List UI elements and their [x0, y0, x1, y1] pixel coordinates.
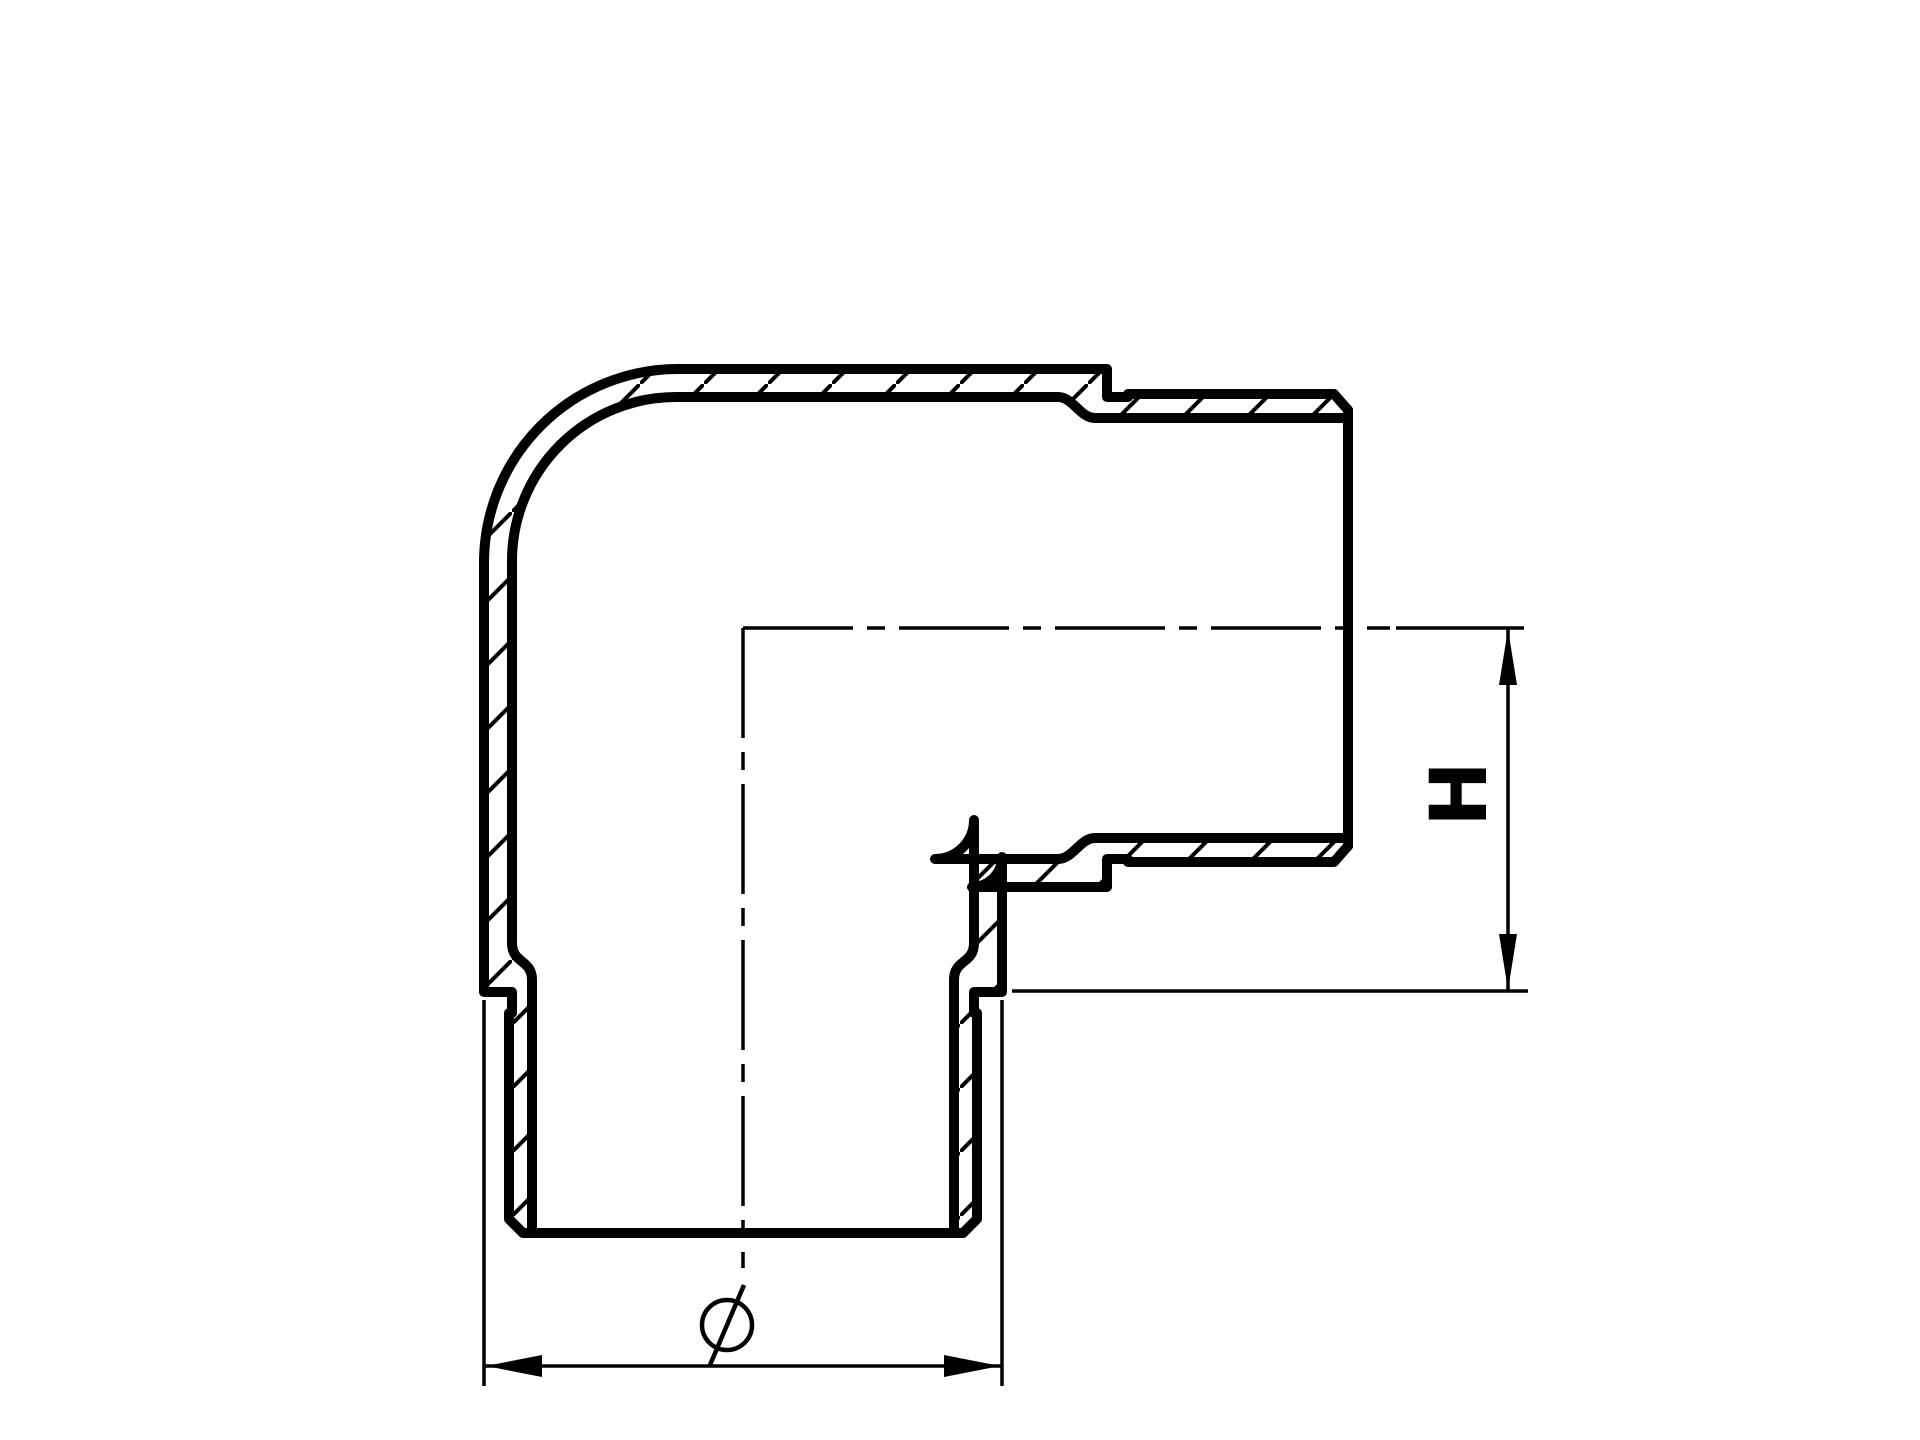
- inner-wall-section: [935, 820, 1348, 1233]
- technical-drawing-canvas: H: [0, 0, 1920, 1440]
- centerlines: [743, 628, 1390, 1268]
- drawing-page: H: [0, 0, 1920, 1440]
- h-arrow-down-icon: [1499, 934, 1517, 990]
- h-dimension: H: [1012, 628, 1528, 991]
- h-dimension-label: H: [1415, 761, 1505, 826]
- dia-arrow-left-icon: [486, 1355, 542, 1377]
- outer-wall-section: [484, 369, 1348, 1233]
- dia-arrow-right-icon: [944, 1355, 1000, 1377]
- diameter-symbol-icon: [702, 1285, 752, 1365]
- elbow-fitting-section: [484, 369, 1348, 1233]
- h-arrow-up-icon: [1499, 629, 1517, 685]
